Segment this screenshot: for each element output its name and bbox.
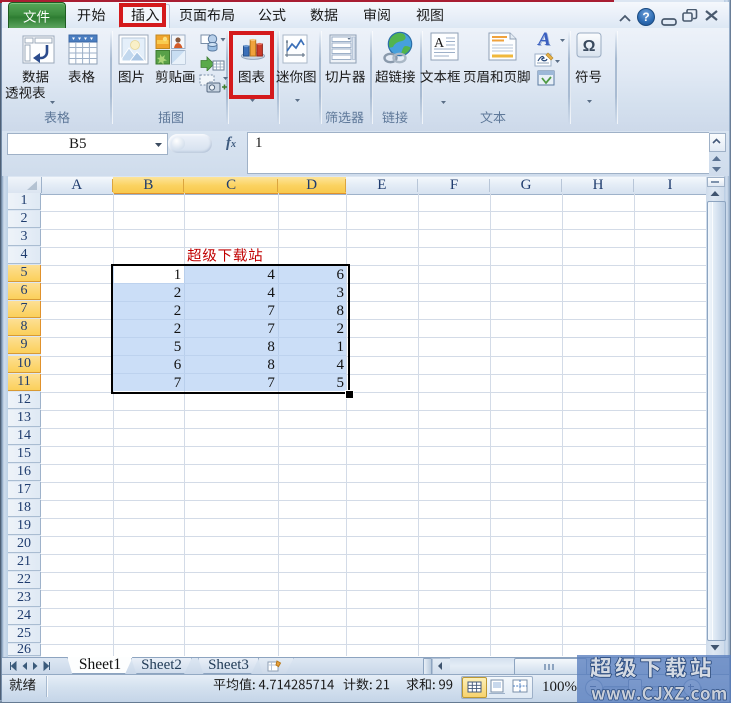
svg-text:Ω: Ω	[583, 38, 596, 55]
